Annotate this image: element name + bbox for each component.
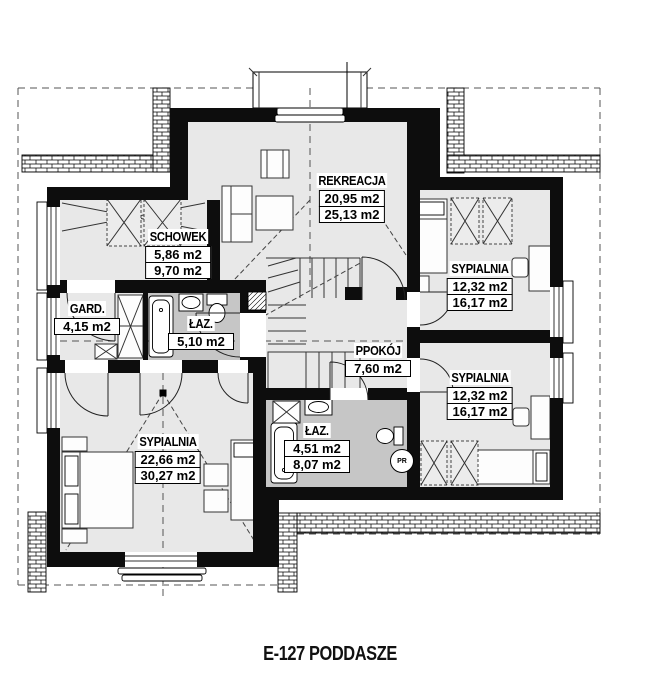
room-name: SYPIALNIA bbox=[138, 434, 199, 449]
room-name: SYPIALNIA bbox=[450, 370, 511, 385]
floor-plan: REKREACJA 20,95 m2 25,13 m2 SCHOWEK 5,86… bbox=[0, 0, 660, 675]
room-area-usable: 12,32 m2 bbox=[447, 387, 513, 404]
room-area-usable: 20,95 m2 bbox=[319, 190, 385, 207]
room-label-rekreacja: REKREACJA 20,95 m2 25,13 m2 bbox=[311, 173, 393, 223]
plan-title: E-127 PODDASZE bbox=[263, 643, 397, 666]
floor-plan-canvas bbox=[0, 0, 660, 675]
room-name: PPOKÓJ bbox=[354, 343, 402, 358]
room-label-schowek: SCHOWEK 5,86 m2 9,70 m2 bbox=[143, 229, 213, 279]
room-area-usable: 5,86 m2 bbox=[145, 246, 211, 263]
room-area-usable: 12,32 m2 bbox=[447, 278, 513, 295]
room-area-usable: 5,10 m2 bbox=[168, 333, 234, 350]
room-area-floor: 16,17 m2 bbox=[447, 403, 513, 420]
room-area-usable: 4,15 m2 bbox=[54, 318, 120, 335]
room-name: ŁAZ. bbox=[187, 316, 214, 331]
room-area-floor: 16,17 m2 bbox=[447, 294, 513, 311]
washing-machine-symbol: PR bbox=[390, 449, 414, 473]
room-label-sypialnia-top-right: SYPIALNIA 12,32 m2 16,17 m2 bbox=[445, 261, 516, 311]
room-area-floor: 8,07 m2 bbox=[284, 456, 350, 473]
room-area-floor: 9,70 m2 bbox=[145, 262, 211, 279]
room-name: REKREACJA bbox=[317, 173, 388, 188]
room-area-usable: 4,51 m2 bbox=[284, 440, 350, 457]
room-area-floor: 25,13 m2 bbox=[319, 206, 385, 223]
room-area-usable: 22,66 m2 bbox=[135, 451, 201, 468]
room-name: GARD. bbox=[68, 301, 106, 316]
room-area-floor: 30,27 m2 bbox=[135, 467, 201, 484]
room-label-sypialnia-master: SYPIALNIA 22,66 m2 30,27 m2 bbox=[133, 434, 204, 484]
room-label-lazienka-dolna: ŁAZ. 4,51 m2 8,07 m2 bbox=[284, 423, 350, 473]
room-label-lazienka-gorna: ŁAZ. 5,10 m2 bbox=[168, 316, 234, 350]
room-name: SCHOWEK bbox=[148, 229, 208, 244]
room-label-garderoba: GARD. 4,15 m2 bbox=[54, 301, 120, 335]
room-name: SYPIALNIA bbox=[450, 261, 511, 276]
room-label-przedpokoj: PPOKÓJ 7,60 m2 bbox=[345, 343, 411, 377]
room-area-usable: 7,60 m2 bbox=[345, 360, 411, 377]
room-label-sypialnia-bottom-right: SYPIALNIA 12,32 m2 16,17 m2 bbox=[445, 370, 516, 420]
room-name: ŁAZ. bbox=[303, 423, 330, 438]
